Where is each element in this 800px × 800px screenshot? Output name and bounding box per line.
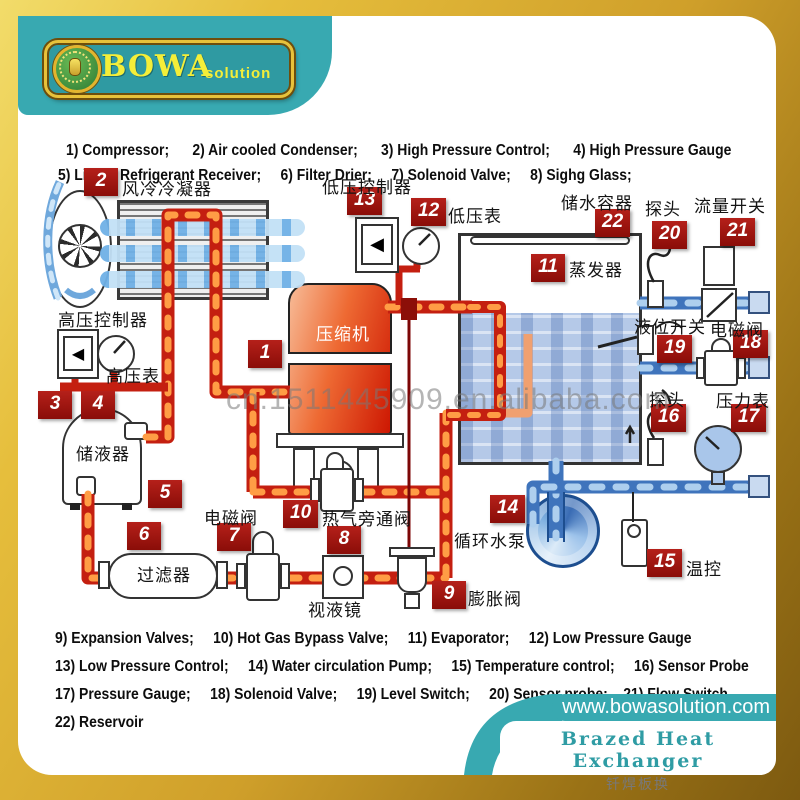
product-name-en: Brazed Heat Exchanger [500,728,776,772]
product-name-zh: 钎焊板换 [500,774,776,794]
website-url-bar: www.bowasolution.com [552,694,776,721]
website-url: www.bowasolution.com [562,696,770,718]
footer-swoosh [0,0,800,800]
product-image: { "logo": { "brand": "BOWA", "suffix": "… [0,0,800,800]
brand-name: BOWA [101,49,212,84]
logo-block: BOWA solution [18,16,332,115]
medallion-core [69,58,81,76]
product-name-card: Brazed Heat Exchanger 钎焊板换 [500,721,776,775]
brand-medallion-icon [53,45,101,93]
brand-suffix: solution [205,65,271,82]
logo-plate: BOWA solution [44,40,294,98]
